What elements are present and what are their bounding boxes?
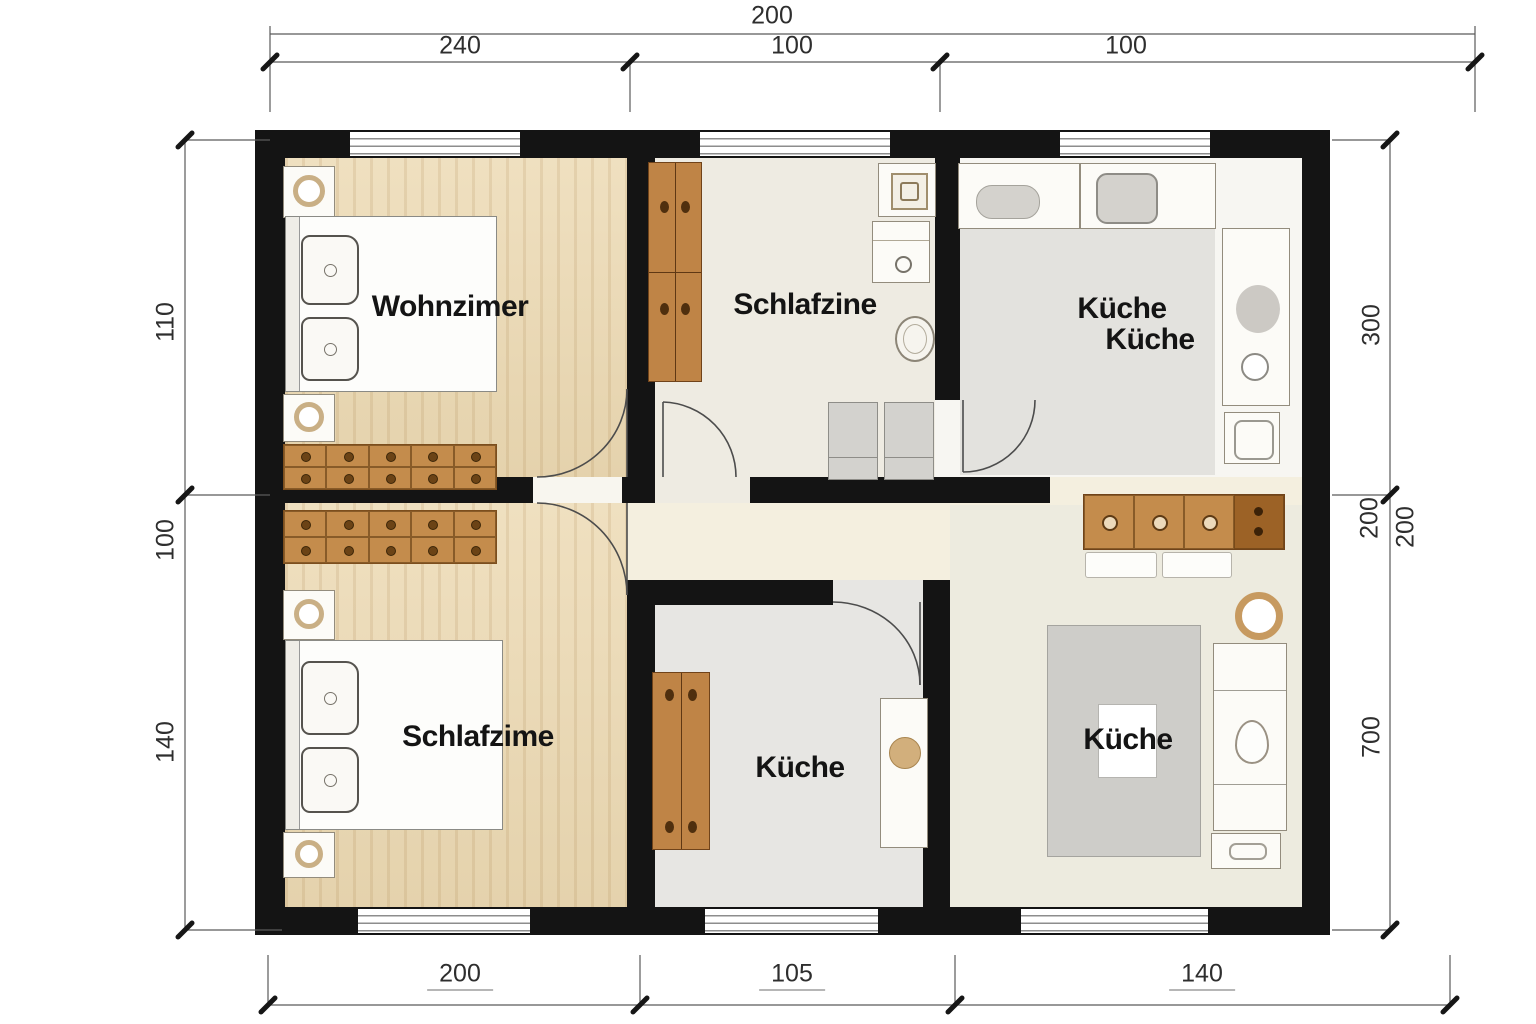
- table: [828, 402, 878, 480]
- lamp-icon: [294, 599, 324, 629]
- pillow: [301, 235, 359, 305]
- bench-cushion: [1085, 552, 1157, 578]
- tall-cabinet: [652, 672, 710, 850]
- window-top-3: [1060, 132, 1210, 156]
- window-top-1: [350, 132, 520, 156]
- dim-left-seg-1: 110: [152, 302, 181, 342]
- pillow: [301, 747, 359, 813]
- appliance-small: [1211, 833, 1281, 869]
- room-label-kueche-topright-1: Küche: [1077, 292, 1166, 326]
- kitchen-counter-right: [1222, 228, 1290, 406]
- wall-h1-right: [622, 477, 655, 503]
- pillow: [301, 317, 359, 381]
- kitchen-counter: [958, 163, 1080, 229]
- counter-column: [880, 698, 928, 848]
- bench-cushion: [1162, 552, 1232, 578]
- fridge-cabinet: [1213, 643, 1287, 831]
- window-top-2: [700, 132, 890, 156]
- room-label-schlafzimmer-top: Schlafzine: [733, 288, 876, 322]
- outer-wall-right: [1302, 130, 1330, 935]
- wood-stool: [1235, 592, 1283, 640]
- dim-top-seg-2: 100: [771, 32, 813, 61]
- dim-left-seg-2: 100: [152, 519, 181, 561]
- wardrobe: [648, 162, 702, 382]
- floor-plan-canvas: Wohnzimer Schlafzine Küche Küche Schlafz…: [0, 0, 1536, 1024]
- wall-h3: [655, 580, 833, 605]
- outer-wall-left: [255, 130, 285, 935]
- room-label-wohnzimmer: Wohnzimer: [372, 290, 529, 324]
- window-bottom-1: [358, 909, 530, 933]
- nightstand: [283, 394, 335, 442]
- washbasin-unit: [872, 221, 930, 283]
- table: [884, 402, 934, 480]
- stove-unit: [878, 163, 936, 217]
- wall-h3-corner: [923, 580, 950, 605]
- bed-headboard: [286, 217, 300, 391]
- dim-bottom-seg-1: 200: [427, 960, 493, 991]
- wall-h2: [750, 477, 1050, 503]
- room-label-kueche-mid: Küche: [755, 751, 844, 785]
- dresser: [283, 444, 497, 490]
- sideboard: [1083, 494, 1285, 550]
- dresser: [283, 510, 497, 564]
- dim-bottom-seg-3: 140: [1169, 960, 1235, 991]
- dim-right-seg-2: 200: [1356, 497, 1385, 539]
- dim-right-seg-3: 200: [1392, 506, 1421, 548]
- dim-left-seg-3: 140: [152, 721, 181, 763]
- window-bottom-2: [705, 909, 878, 933]
- lamp-icon: [295, 840, 323, 868]
- dim-top-seg-1: 240: [439, 32, 481, 61]
- dim-right-seg-4: 700: [1358, 716, 1387, 758]
- nightstand: [283, 832, 335, 878]
- appliance-box: [1224, 412, 1280, 464]
- dim-top-seg-3: 100: [1105, 32, 1147, 61]
- bed-headboard: [286, 641, 300, 829]
- nightstand: [283, 166, 335, 218]
- wall-vertical-a-lower: [627, 580, 655, 907]
- door-opening-h1: [533, 477, 622, 503]
- kitchen-sink-unit: [1080, 163, 1216, 229]
- lamp-icon: [294, 402, 324, 432]
- nightstand: [283, 590, 335, 640]
- lamp-icon: [293, 175, 325, 207]
- pillow: [301, 661, 359, 735]
- room-label-kueche-bottomright: Küche: [1083, 723, 1172, 757]
- wall-vertical-b-upper: [935, 158, 960, 400]
- dim-right-seg-1: 300: [1358, 304, 1387, 346]
- dim-top-overall: 200: [751, 2, 793, 31]
- chair: [895, 316, 935, 362]
- room-label-schlafzimmer-bottom: Schlafzime: [402, 720, 554, 754]
- dim-bottom-seg-2: 105: [759, 960, 825, 991]
- room-label-kueche-topright-2: Küche: [1105, 323, 1194, 357]
- window-bottom-3: [1021, 909, 1208, 933]
